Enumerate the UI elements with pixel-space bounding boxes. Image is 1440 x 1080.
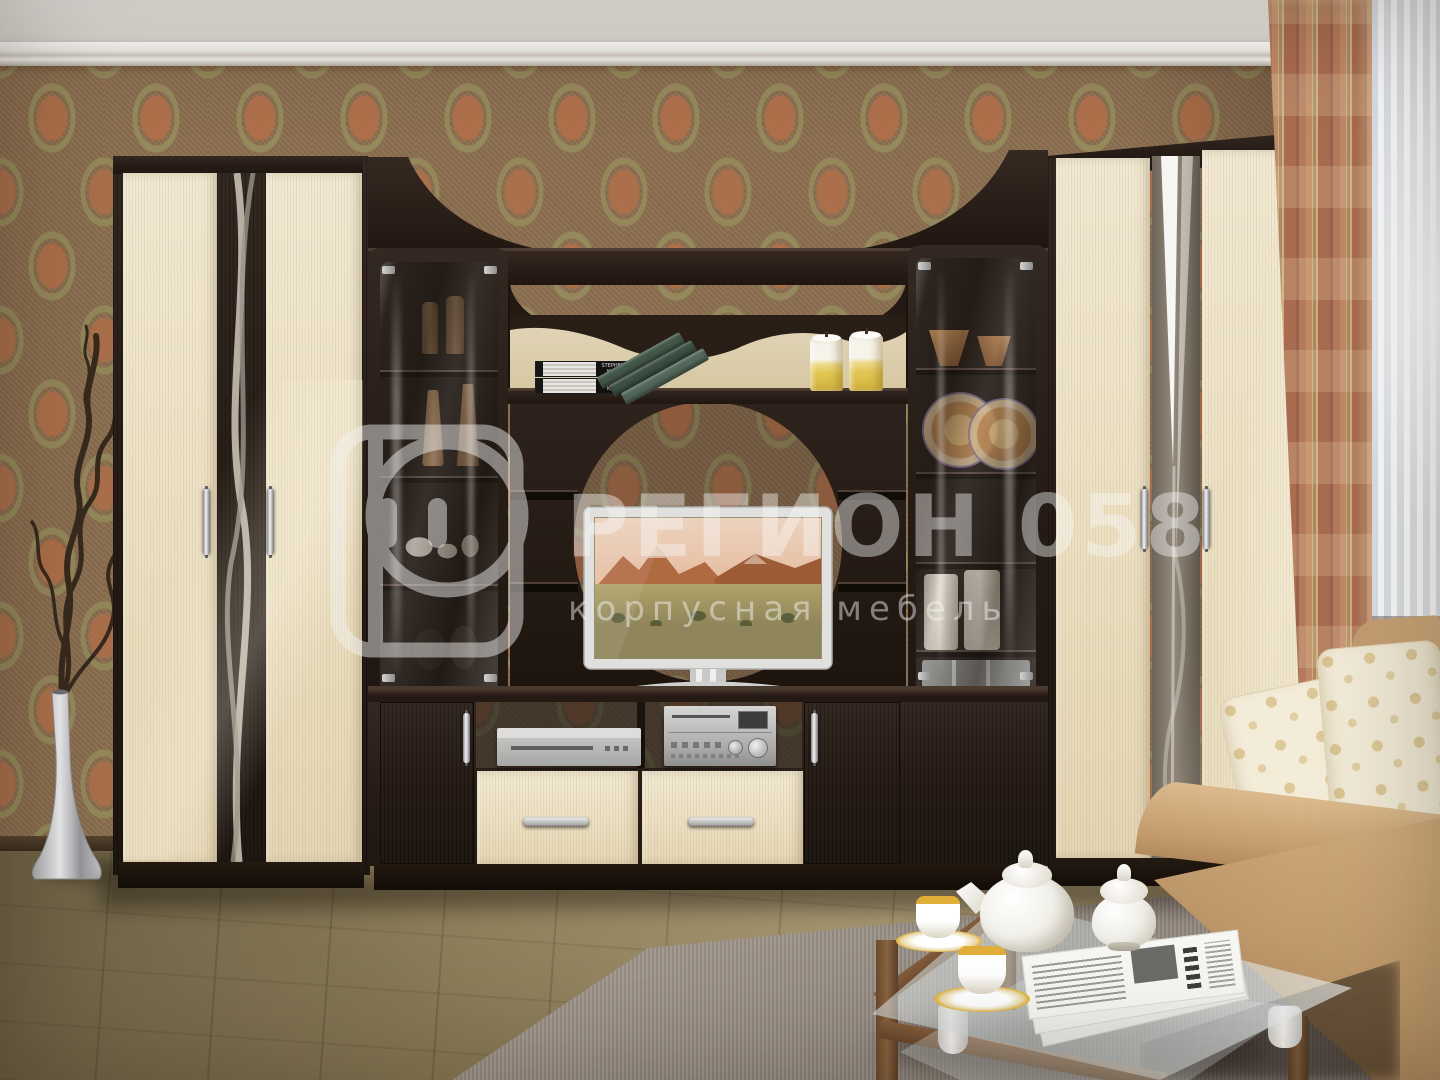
vase-body <box>32 692 101 879</box>
candle-right <box>849 334 883 391</box>
teacup-front <box>934 946 1030 1014</box>
newsprint-columns <box>1204 940 1235 989</box>
cabinet-right-glass-door <box>916 258 1036 688</box>
sugar-bowl <box>1090 866 1160 950</box>
glass-reflection <box>938 264 944 682</box>
dvd-slot <box>511 746 593 750</box>
dvd-player <box>497 728 641 766</box>
stereo-system <box>664 706 776 766</box>
leaning-green-books <box>594 336 724 398</box>
candle-left <box>810 337 843 391</box>
sugar-bowl-knob <box>1117 864 1131 881</box>
tv <box>578 500 838 700</box>
stereo-knob <box>748 738 768 758</box>
hinge-icon <box>382 266 395 274</box>
stand-cupboard-far-right <box>900 702 1048 864</box>
stereo-buttons <box>671 742 723 748</box>
cd-slot <box>672 715 730 718</box>
newsprint-photo <box>1130 944 1178 983</box>
hinge-icon <box>918 262 931 270</box>
newsprint-headline <box>1182 944 1201 989</box>
left-wardrobe-handle-right <box>267 489 274 555</box>
living-room-photo: STEPHEN KING STEPHEN KING <box>0 0 1440 1080</box>
left-wardrobe-door-right <box>266 173 362 862</box>
sugar-bowl-foot <box>1108 942 1140 951</box>
glass-reflection <box>392 268 401 682</box>
right-wardrobe-handle-left <box>1141 489 1148 549</box>
sugar-bowl-lid <box>1100 878 1148 904</box>
crown-molding <box>0 42 1440 66</box>
hinge-icon <box>1020 672 1033 680</box>
stereo-knob <box>728 740 743 755</box>
stand-door-left-handle <box>463 713 470 763</box>
dvd-buttons <box>605 746 631 751</box>
glass-reflection <box>468 268 474 682</box>
left-wardrobe-top <box>113 156 368 174</box>
stand-door-right <box>804 702 900 864</box>
stereo-buttons <box>671 754 741 758</box>
left-wardrobe-handle-left <box>203 489 210 555</box>
teapot-knob <box>1018 850 1033 868</box>
drawer-right-handle <box>688 817 754 826</box>
hinge-icon <box>382 674 395 682</box>
center-strip-wave-decor <box>217 173 266 862</box>
mirror-strip-reflection <box>1152 156 1200 858</box>
stand-plinth <box>374 864 1044 890</box>
teapot <box>956 856 1098 956</box>
left-wardrobe-plinth <box>118 862 364 888</box>
stereo-display <box>738 711 768 729</box>
cup <box>916 896 960 938</box>
stand-door-right-handle <box>811 713 818 763</box>
drawer-left-handle <box>523 817 589 826</box>
right-wardrobe-door-left <box>1056 158 1150 858</box>
hinge-icon <box>484 674 497 682</box>
ceiling <box>0 0 1440 44</box>
hinge-icon <box>484 266 497 274</box>
newsprint-columns <box>1031 953 1126 1010</box>
stand-door-left <box>380 702 474 864</box>
hinge-icon <box>918 672 931 680</box>
hinge-icon <box>1020 262 1033 270</box>
stand-counter <box>368 686 1048 702</box>
right-wardrobe-handle-right <box>1203 489 1210 549</box>
glass-reflection <box>1005 264 1014 682</box>
